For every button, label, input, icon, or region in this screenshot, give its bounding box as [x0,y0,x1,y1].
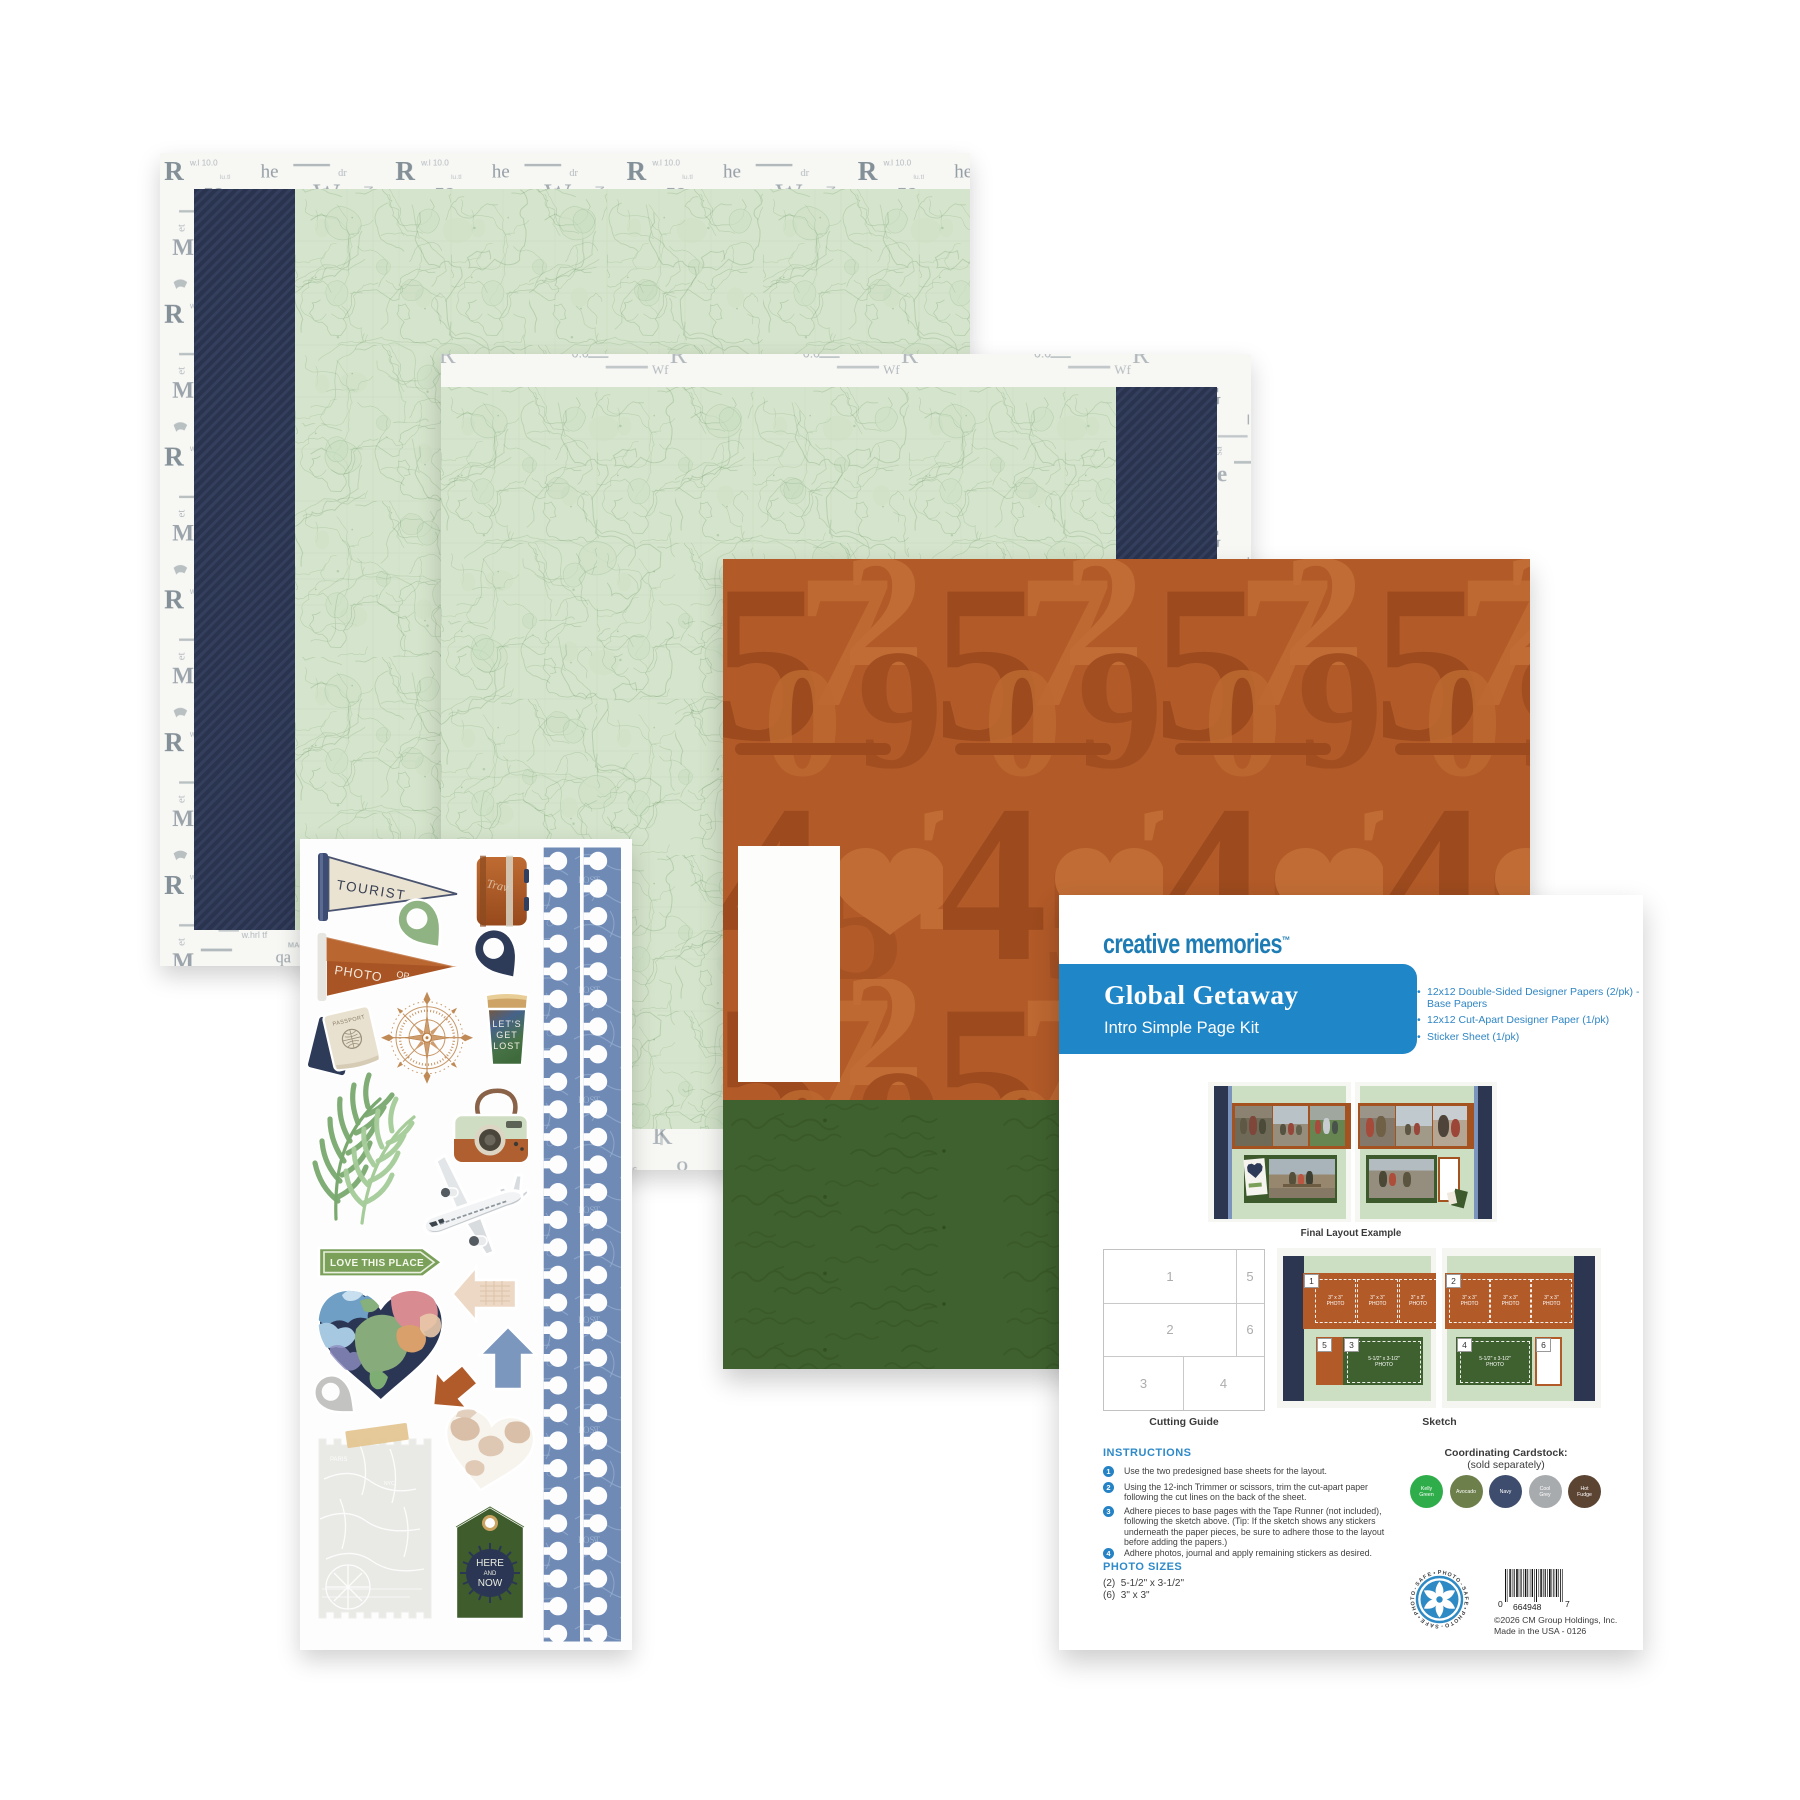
svg-text:NYC: NYC [384,1481,395,1487]
svg-text:LOVE THIS PLACE: LOVE THIS PLACE [330,1258,424,1269]
svg-text:AND: AND [484,1571,497,1577]
svg-text:LOST: LOST [493,1041,521,1051]
svg-text:GET: GET [496,1030,518,1040]
svg-text:NOW: NOW [478,1578,503,1589]
svg-text:0: 0 [1498,1599,1503,1609]
svg-text:HERE: HERE [476,1558,504,1569]
svg-text:O: O [1410,1601,1417,1606]
svg-text:LET'S: LET'S [492,1019,521,1029]
svg-text:664948: 664948 [1513,1602,1542,1612]
svg-text:P: P [1438,1570,1442,1576]
svg-text:7: 7 [1565,1599,1570,1609]
svg-text:PARIS: PARIS [330,1457,348,1463]
